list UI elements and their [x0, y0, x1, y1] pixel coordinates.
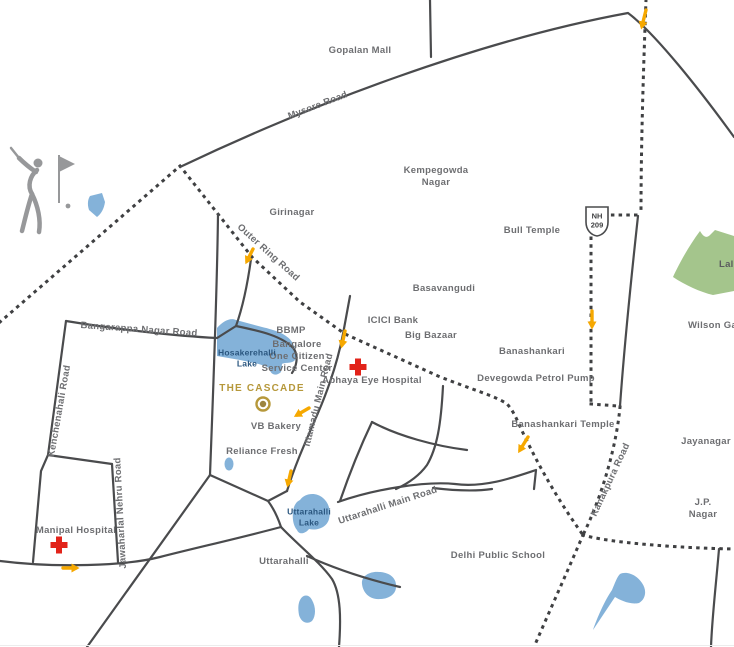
hospital-cross-icon [51, 537, 68, 554]
label-uttarahalli-lake: Uttarahalli Lake [287, 506, 331, 527]
label-abhaya-eye-hospital: Abhaya Eye Hospital [322, 375, 422, 387]
label-nh209: NH 209 [591, 212, 604, 229]
label-lalbagh: Lalbagh [719, 259, 734, 271]
label-devegowda-petrol-pump: Devegowda Petrol Pump [477, 373, 595, 385]
label-big-bazaar: Big Bazaar [405, 330, 457, 342]
label-reliance-fresh: Reliance Fresh [226, 446, 298, 458]
direction-arrow [520, 437, 528, 450]
label-icici-bank: ICICI Bank [368, 315, 419, 327]
label-uttarahalli: Uttarahalli [259, 556, 309, 568]
label-jp-nagar: J.P. Nagar [688, 497, 719, 521]
label-delhi-public-school: Delhi Public School [451, 550, 545, 562]
label-bull-temple: Bull Temple [504, 225, 560, 237]
label-gopalan-mall: Gopalan Mall [329, 45, 392, 57]
direction-arrows [63, 10, 646, 568]
location-map: Gopalan Mall Mysore Road Girinagar Kempe… [0, 0, 734, 647]
label-manipal-hospital: Manipal Hospital [36, 525, 116, 537]
hospital-cross-icon [350, 359, 367, 376]
lakes-layer [88, 193, 645, 630]
label-kempegowda-nagar: Kempegowda Nagar [404, 165, 469, 189]
direction-arrow [297, 408, 309, 415]
label-hosakerehalli-lake: Hosakerehalli Lake [218, 347, 276, 368]
lake-shape [225, 458, 234, 471]
golf-flag-icon [59, 155, 75, 208]
label-the-cascade: THE CASCADE [219, 383, 304, 396]
lake-shape [88, 193, 105, 217]
lake-shape [298, 596, 315, 623]
label-vb-bakery: VB Bakery [251, 421, 301, 433]
label-banashankari-temple: Banashankari Temple [511, 419, 614, 431]
label-bbmp: BBMP [276, 325, 305, 337]
lake-shape [593, 573, 645, 630]
golfer-icon [11, 148, 43, 232]
label-wilson-garden: Wilson Garden [688, 320, 734, 332]
cascade-location-marker [257, 398, 270, 411]
label-banashankari: Banashankari [499, 346, 565, 358]
label-jayanagar: Jayanagar [681, 436, 731, 448]
label-girinagar: Girinagar [270, 207, 315, 219]
label-basavangudi: Basavangudi [413, 283, 475, 295]
